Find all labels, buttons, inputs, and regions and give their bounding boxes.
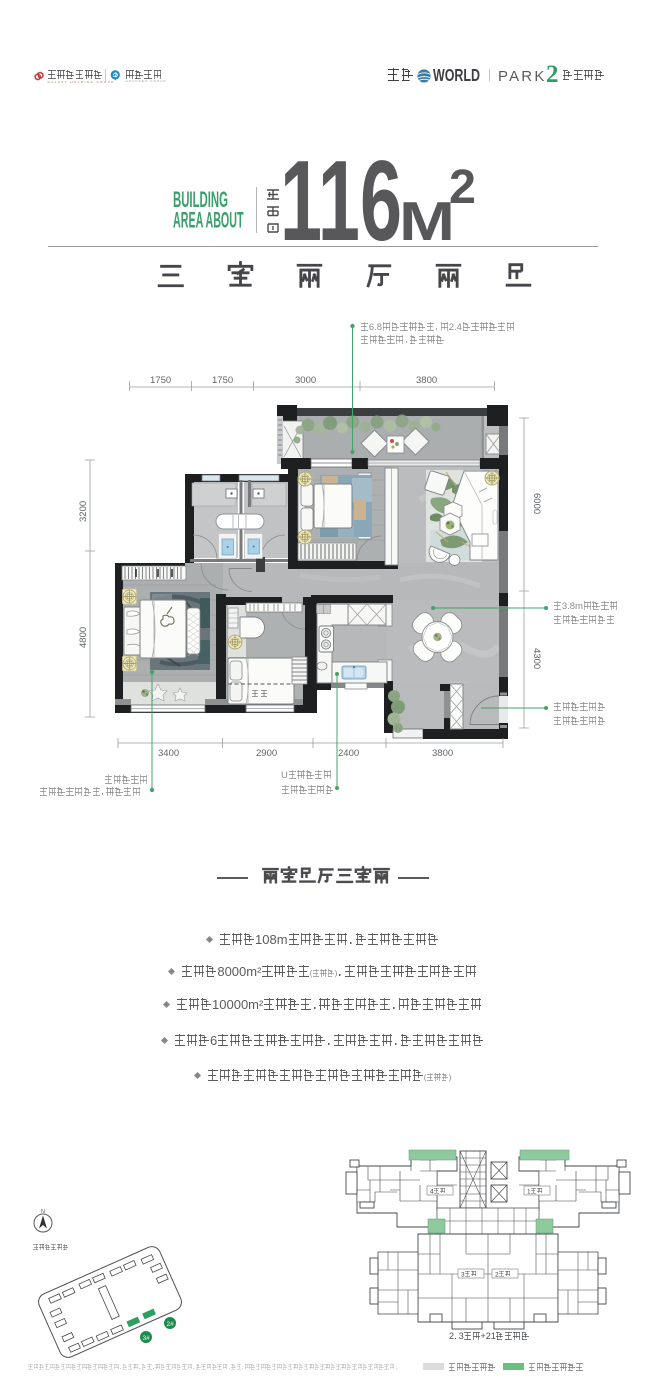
svg-text:2400: 2400 bbox=[338, 748, 359, 759]
svg-text:M: M bbox=[399, 190, 455, 250]
svg-text:2: 2 bbox=[449, 161, 476, 214]
svg-text:4300: 4300 bbox=[531, 648, 542, 669]
svg-text:3200: 3200 bbox=[78, 501, 89, 522]
svg-text:2900: 2900 bbox=[256, 748, 277, 759]
svg-text:116: 116 bbox=[280, 140, 402, 250]
svg-text:2#: 2# bbox=[167, 1321, 175, 1328]
svg-text:3800: 3800 bbox=[416, 375, 437, 386]
svg-text:6000: 6000 bbox=[531, 493, 542, 514]
svg-text:4800: 4800 bbox=[78, 627, 89, 648]
svg-text:1750: 1750 bbox=[212, 375, 233, 386]
svg-text:AREA ABOUT: AREA ABOUT bbox=[173, 208, 244, 233]
svg-text:3#: 3# bbox=[143, 1335, 151, 1342]
svg-text:3000: 3000 bbox=[295, 375, 316, 386]
svg-text:1750: 1750 bbox=[150, 375, 171, 386]
svg-text:3400: 3400 bbox=[158, 748, 179, 759]
svg-text:N: N bbox=[41, 1209, 45, 1215]
svg-text:3800: 3800 bbox=[432, 748, 453, 759]
